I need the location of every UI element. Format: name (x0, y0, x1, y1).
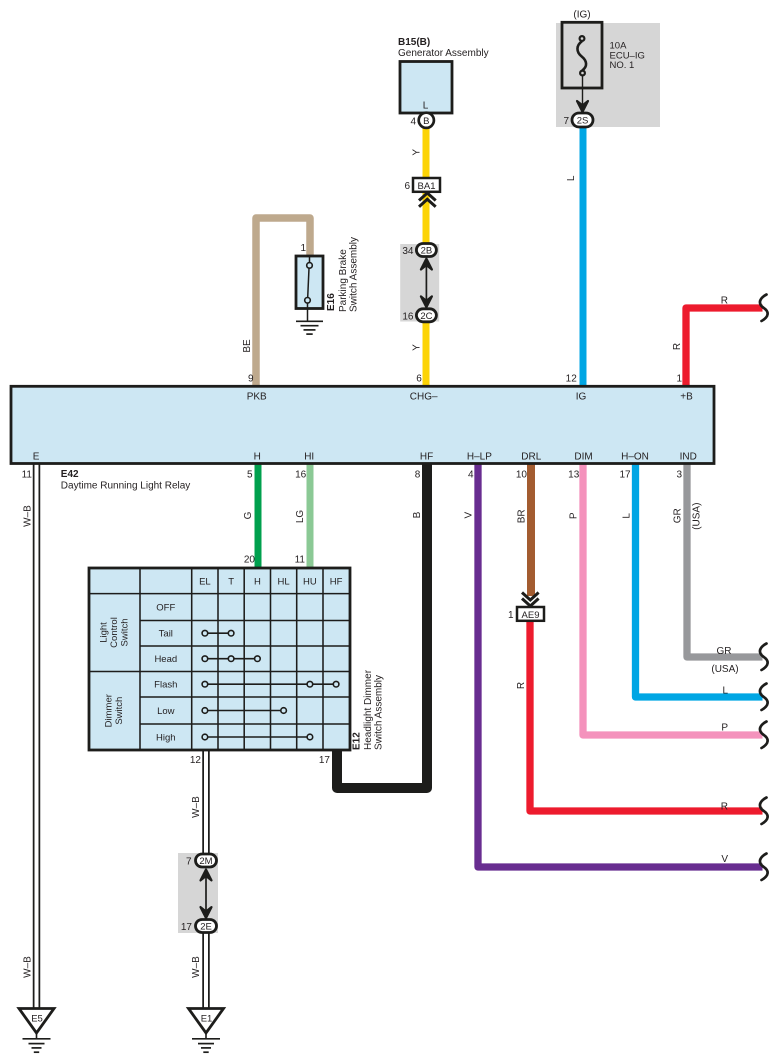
svg-text:4: 4 (468, 470, 474, 481)
svg-text:B: B (423, 116, 429, 127)
svg-text:(USA): (USA) (692, 503, 703, 530)
svg-text:HL: HL (278, 577, 290, 588)
svg-text:V: V (721, 854, 728, 865)
svg-text:H–LP: H–LP (467, 451, 492, 462)
svg-text:P: P (721, 723, 728, 734)
svg-text:34: 34 (402, 246, 414, 257)
svg-text:HF: HF (420, 451, 433, 462)
svg-text:Low: Low (157, 706, 175, 717)
svg-text:16: 16 (295, 470, 307, 481)
svg-text:W–B: W–B (23, 505, 34, 527)
svg-text:Y: Y (412, 149, 423, 156)
svg-text:+B: +B (680, 392, 693, 403)
svg-text:Dimmer: Dimmer (104, 694, 115, 727)
svg-text:20: 20 (244, 555, 256, 566)
svg-text:Generator Assembly: Generator Assembly (398, 48, 489, 59)
svg-text:1: 1 (508, 610, 514, 621)
svg-text:(USA): (USA) (711, 664, 738, 675)
svg-text:L: L (423, 101, 429, 112)
svg-text:Headlight Dimmer: Headlight Dimmer (363, 669, 374, 750)
svg-text:2S: 2S (577, 116, 589, 127)
svg-text:V: V (464, 512, 475, 519)
svg-text:EL: EL (199, 577, 211, 588)
svg-text:2C: 2C (420, 311, 432, 322)
svg-text:2M: 2M (199, 856, 212, 867)
svg-text:E5: E5 (31, 1014, 43, 1025)
svg-text:R: R (721, 801, 728, 812)
svg-text:Switch Assembly: Switch Assembly (349, 237, 360, 312)
svg-text:IG: IG (576, 392, 587, 403)
svg-text:LG: LG (295, 510, 306, 524)
svg-text:2B: 2B (421, 246, 433, 257)
svg-text:W–B: W–B (23, 956, 34, 978)
svg-text:Daytime Running Light Relay: Daytime Running Light Relay (61, 481, 191, 492)
svg-text:11: 11 (295, 555, 306, 566)
svg-text:B: B (412, 511, 423, 518)
svg-text:G: G (243, 511, 254, 519)
svg-text:16: 16 (402, 311, 414, 322)
svg-text:Control: Control (109, 617, 120, 648)
svg-text:Switch Assembly: Switch Assembly (374, 675, 385, 750)
svg-text:IND: IND (680, 451, 697, 462)
svg-text:E: E (33, 451, 40, 462)
svg-text:HU: HU (303, 577, 317, 588)
svg-text:Y: Y (412, 344, 423, 351)
svg-text:Parking Brake: Parking Brake (338, 249, 349, 312)
svg-text:PKB: PKB (247, 392, 267, 403)
svg-text:HF: HF (330, 577, 343, 588)
svg-text:Tail: Tail (159, 629, 173, 640)
svg-text:L: L (566, 175, 577, 181)
svg-text:17: 17 (319, 755, 331, 766)
svg-text:6: 6 (404, 181, 410, 192)
svg-text:R: R (516, 682, 527, 689)
svg-text:5: 5 (247, 470, 253, 481)
svg-text:9: 9 (248, 374, 254, 385)
svg-text:AE9: AE9 (522, 610, 540, 621)
svg-text:HI: HI (304, 451, 314, 462)
svg-text:DRL: DRL (521, 451, 541, 462)
svg-text:13: 13 (568, 470, 580, 481)
svg-text:(IG): (IG) (573, 10, 590, 21)
svg-text:E12: E12 (352, 732, 363, 750)
svg-text:B15(B): B15(B) (398, 37, 430, 48)
svg-text:17: 17 (619, 470, 631, 481)
svg-text:BA1: BA1 (418, 181, 436, 192)
svg-text:E1: E1 (201, 1014, 213, 1025)
svg-text:Switch: Switch (114, 697, 125, 725)
svg-text:H–ON: H–ON (621, 451, 649, 462)
svg-text:Switch: Switch (120, 619, 131, 647)
svg-text:3: 3 (676, 470, 682, 481)
svg-text:L: L (722, 685, 728, 696)
svg-text:12: 12 (566, 374, 578, 385)
svg-text:BE: BE (242, 339, 253, 353)
svg-text:H: H (254, 451, 261, 462)
svg-text:BR: BR (516, 509, 527, 523)
svg-text:P: P (568, 512, 579, 519)
svg-text:W–B: W–B (191, 956, 202, 978)
svg-text:2E: 2E (200, 922, 212, 933)
svg-text:11: 11 (22, 470, 33, 481)
svg-text:17: 17 (181, 922, 193, 933)
svg-text:Light: Light (99, 622, 110, 643)
svg-text:7: 7 (186, 856, 192, 867)
svg-text:H: H (254, 577, 261, 588)
svg-text:1: 1 (300, 243, 306, 254)
svg-text:OFF: OFF (156, 603, 175, 614)
svg-text:CHG–: CHG– (410, 392, 438, 403)
svg-text:Flash: Flash (154, 680, 177, 691)
svg-text:6: 6 (416, 374, 422, 385)
svg-text:W–B: W–B (191, 796, 202, 818)
svg-text:12: 12 (190, 755, 202, 766)
svg-text:R: R (672, 343, 683, 350)
svg-text:High: High (156, 733, 176, 744)
svg-text:T: T (228, 577, 234, 588)
svg-text:L: L (622, 513, 633, 519)
svg-text:NO. 1: NO. 1 (610, 60, 635, 71)
svg-text:Head: Head (154, 654, 177, 665)
svg-text:10: 10 (516, 470, 528, 481)
svg-text:1: 1 (676, 374, 682, 385)
svg-text:8: 8 (415, 470, 421, 481)
svg-text:GR: GR (672, 508, 683, 523)
svg-text:E42: E42 (61, 469, 79, 480)
svg-text:7: 7 (563, 116, 569, 127)
svg-text:GR: GR (717, 646, 732, 657)
svg-text:DIM: DIM (574, 451, 592, 462)
svg-text:4: 4 (410, 116, 416, 127)
svg-text:R: R (721, 295, 728, 306)
svg-text:E16: E16 (326, 293, 337, 311)
